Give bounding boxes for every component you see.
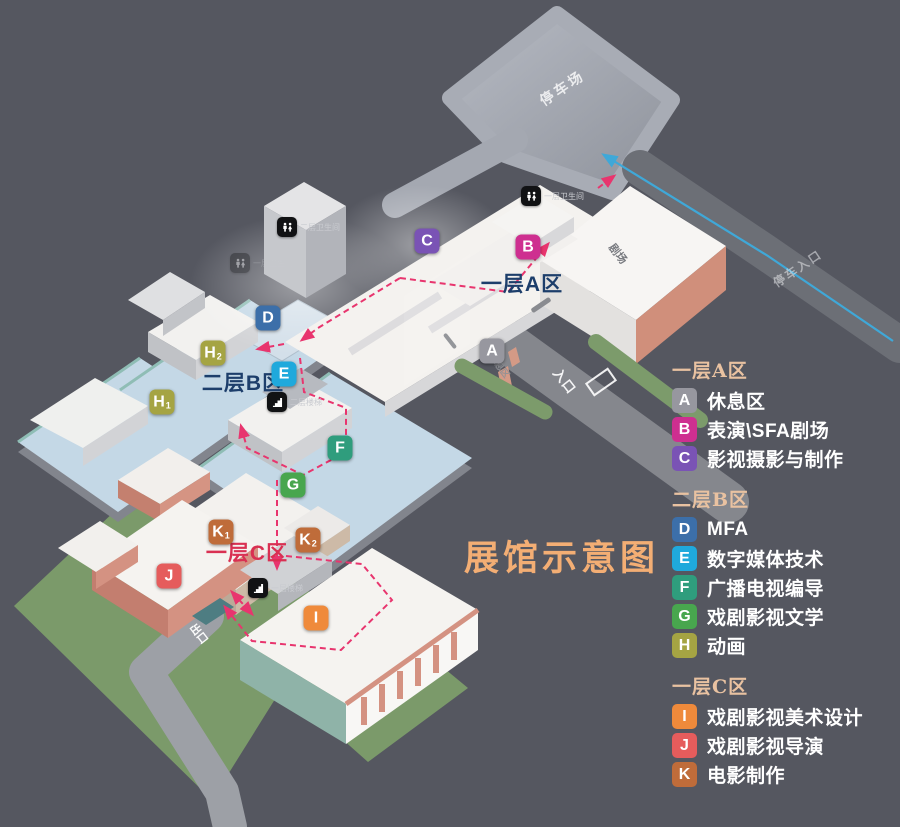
facility-icon-box	[277, 217, 297, 237]
legend: 一层A区A休息区B表演\SFA剧场C影视摄影与制作二层B区DMFAE数字媒体技术…	[672, 356, 898, 791]
marker-letter: A	[486, 343, 498, 359]
facility-label: 一层楼梯	[271, 583, 303, 594]
marker-letter: I	[314, 610, 318, 626]
restroom-icon	[281, 221, 294, 234]
legend-item-i: I戏剧影视美术设计	[672, 704, 898, 729]
restroom-icon	[525, 190, 538, 203]
map-marker-h1: H1	[150, 390, 175, 415]
map-marker-i: I	[304, 606, 329, 631]
marker-subscript: 1	[166, 402, 171, 411]
page-title: 展馆示意图	[464, 530, 659, 581]
facility-restroom: 一层卫生间	[230, 253, 293, 273]
legend-label: 戏剧影视美术设计	[707, 703, 863, 730]
marker-subscript: 2	[312, 540, 317, 549]
facility-label: 一层卫生间	[253, 258, 293, 269]
marker-letter: K	[212, 524, 224, 540]
legend-item-b: B表演\SFA剧场	[672, 417, 898, 442]
legend-badge-i: I	[672, 704, 697, 729]
map-marker-b: B	[516, 235, 541, 260]
marker-letter: G	[287, 477, 299, 493]
legend-label: 戏剧影视文学	[707, 603, 824, 630]
facility-restroom: 一层卫生间	[521, 186, 584, 206]
marker-letter: F	[335, 440, 345, 456]
map-marker-k2: K2	[296, 528, 321, 553]
legend-item-a: A休息区	[672, 388, 898, 413]
marker-letter: C	[421, 233, 433, 249]
map-marker-k1: K1	[209, 520, 234, 545]
marker-subscript: 1	[225, 532, 230, 541]
legend-label: 影视摄影与制作	[707, 445, 844, 472]
facility-label: 一层卫生间	[544, 191, 584, 202]
facility-icon-box	[248, 578, 268, 598]
legend-label: 休息区	[707, 387, 766, 414]
marker-letter: H	[153, 394, 165, 410]
legend-badge-c: C	[672, 446, 697, 471]
stairs-icon	[271, 396, 284, 409]
marker-letter: D	[262, 310, 274, 326]
map-marker-a: A	[480, 339, 505, 364]
marker-letter: B	[522, 239, 534, 255]
legend-item-e: E数字媒体技术	[672, 546, 898, 571]
map-marker-e: E	[272, 362, 297, 387]
map-marker-f: F	[328, 436, 353, 461]
marker-letter: E	[279, 366, 290, 382]
restroom-icon	[234, 257, 247, 270]
facility-stairs: 二层楼梯	[267, 392, 322, 412]
exhibition-map-page: 停车场停车入口入口出口剧场休息区 展馆示意图 一层A区A休息区B表演\SFA剧场…	[0, 0, 900, 827]
legend-item-h: H动画	[672, 633, 898, 658]
legend-item-j: J戏剧影视导演	[672, 733, 898, 758]
marker-letter: H	[204, 345, 216, 361]
legend-item-d: DMFA	[672, 517, 898, 542]
facility-icon-box	[521, 186, 541, 206]
legend-section-header: 一层A区	[672, 356, 898, 383]
legend-badge-f: F	[672, 575, 697, 600]
legend-label: 表演\SFA剧场	[707, 416, 829, 443]
map-marker-g: G	[281, 473, 306, 498]
legend-label: 数字媒体技术	[707, 545, 824, 572]
legend-label: MFA	[707, 519, 749, 541]
map-zone-label: 一层A区	[481, 268, 563, 298]
marker-letter: J	[165, 568, 174, 584]
facility-label: 二层楼梯	[290, 397, 322, 408]
legend-section-header: 一层C区	[672, 672, 898, 699]
legend-badge-a: A	[672, 388, 697, 413]
marker-subscript: 2	[217, 353, 222, 362]
legend-item-c: C影视摄影与制作	[672, 446, 898, 471]
legend-label: 动画	[707, 632, 746, 659]
facility-label: 二层卫生间	[300, 222, 340, 233]
legend-label: 广播电视编导	[707, 574, 824, 601]
legend-item-g: G戏剧影视文学	[672, 604, 898, 629]
facility-icon-box	[267, 392, 287, 412]
facility-stairs: 一层楼梯	[248, 578, 303, 598]
legend-badge-d: D	[672, 517, 697, 542]
facility-restroom: 二层卫生间	[277, 217, 340, 237]
legend-label: 电影制作	[707, 761, 785, 788]
legend-label: 戏剧影视导演	[707, 732, 824, 759]
legend-badge-j: J	[672, 733, 697, 758]
legend-badge-g: G	[672, 604, 697, 629]
facility-icon-box	[230, 253, 250, 273]
legend-badge-b: B	[672, 417, 697, 442]
legend-badge-h: H	[672, 633, 697, 658]
map-marker-c: C	[415, 229, 440, 254]
map-marker-d: D	[256, 306, 281, 331]
map-marker-j: J	[157, 564, 182, 589]
legend-badge-e: E	[672, 546, 697, 571]
map-marker-h2: H2	[201, 341, 226, 366]
stairs-icon	[252, 582, 265, 595]
legend-item-f: F广播电视编导	[672, 575, 898, 600]
legend-item-k: K电影制作	[672, 762, 898, 787]
legend-badge-k: K	[672, 762, 697, 787]
marker-letter: K	[299, 532, 311, 548]
legend-section-header: 二层B区	[672, 485, 898, 512]
